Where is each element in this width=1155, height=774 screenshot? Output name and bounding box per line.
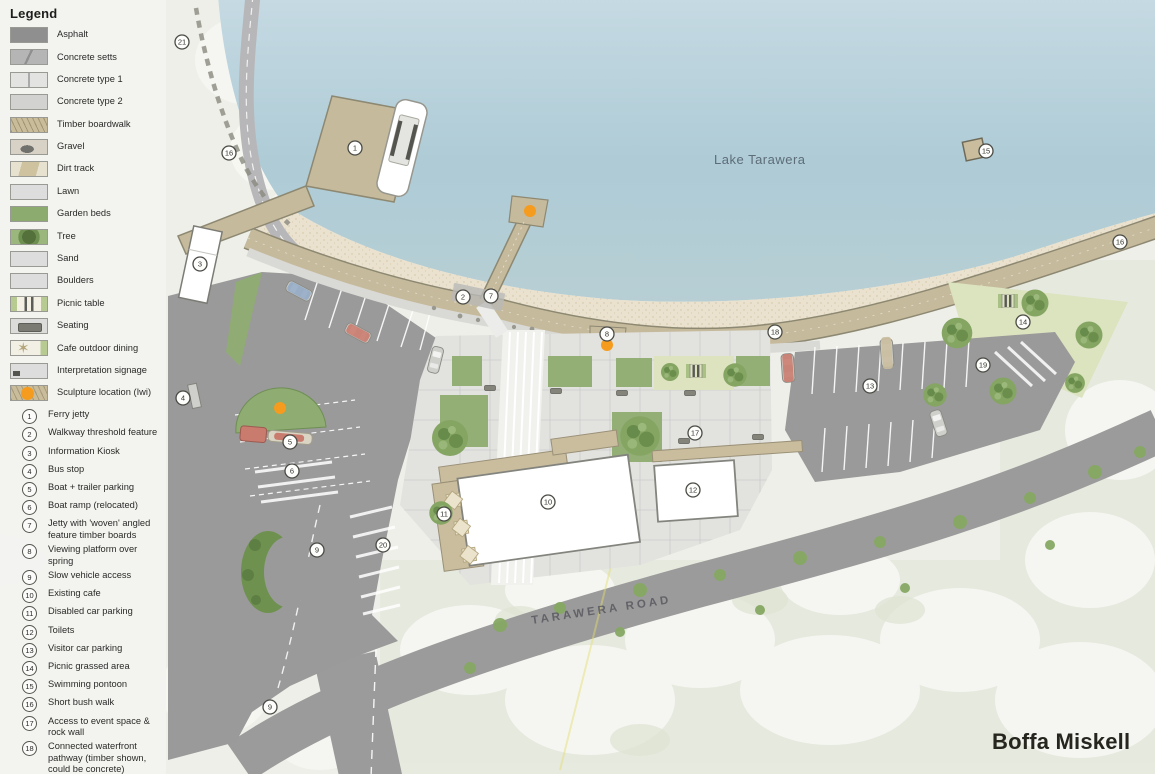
svg-text:9: 9 — [268, 703, 272, 712]
item-number-badge: 11 — [22, 606, 37, 621]
item-number-badge: 15 — [22, 679, 37, 694]
legend-item-label: Short bush walk — [48, 697, 114, 708]
legend-material-label: Concrete type 2 — [57, 97, 123, 107]
legend-material-concrete-type-1: Concrete type 1 — [10, 72, 162, 88]
item-number-badge: 13 — [22, 643, 37, 658]
legend-material-sculpture-location: Sculpture location (Iwi) — [10, 385, 162, 401]
map-marker-13: 13 — [863, 379, 877, 393]
legend-item-2: 2Walkway threshold feature — [10, 427, 162, 442]
dirt-track-swatch — [10, 161, 48, 177]
svg-text:8: 8 — [605, 330, 609, 339]
legend-item-label: Viewing platform over spring — [48, 544, 162, 567]
legend-item-label: Access to event space & rock wall — [48, 716, 162, 739]
item-number-badge: 14 — [22, 661, 37, 676]
item-number-badge: 3 — [22, 446, 37, 461]
legend-material-concrete-setts: Concrete setts — [10, 49, 162, 65]
item-number-badge: 1 — [22, 409, 37, 424]
interpretation-signage-swatch — [10, 363, 48, 379]
map-marker-16: 16 — [222, 146, 236, 160]
legend-material-label: Concrete type 1 — [57, 75, 123, 85]
gravel-swatch — [10, 139, 48, 155]
legend-item-label: Disabled car parking — [48, 606, 133, 617]
legend-item-label: Boat ramp (relocated) — [48, 500, 138, 511]
legend-material-sand: Sand — [10, 251, 162, 267]
map-marker-7: 7 — [484, 289, 498, 303]
legend-item-label: Ferry jetty — [48, 409, 89, 420]
svg-text:14: 14 — [1019, 318, 1027, 327]
legend-item-label: Visitor car parking — [48, 643, 122, 654]
legend-title: Legend — [10, 6, 162, 21]
legend-item-13: 13Visitor car parking — [10, 643, 162, 658]
legend-material-label: Asphalt — [57, 30, 88, 40]
svg-text:3: 3 — [198, 260, 202, 269]
legend-material-label: Sculpture location (Iwi) — [57, 388, 151, 398]
item-number-badge: 5 — [22, 482, 37, 497]
legend-item-14: 14Picnic grassed area — [10, 661, 162, 676]
svg-text:9: 9 — [315, 546, 319, 555]
svg-text:5: 5 — [288, 438, 292, 447]
map-marker-6: 6 — [285, 464, 299, 478]
site-plan-drawing: Lake Tarawera TARAWERA ROAD 123456789910… — [0, 0, 1155, 774]
legend-material-lawn: Lawn — [10, 184, 162, 200]
svg-text:16: 16 — [225, 149, 233, 158]
legend-material-label: Gravel — [57, 142, 84, 152]
map-marker-1: 1 — [348, 141, 362, 155]
legend-material-cafe-outdoor-dining: Cafe outdoor dining — [10, 340, 162, 356]
legend-material-concrete-type-2: Concrete type 2 — [10, 94, 162, 110]
map-marker-20: 20 — [376, 538, 390, 552]
legend-item-label: Bus stop — [48, 464, 84, 475]
legend-material-label: Boulders — [57, 276, 94, 286]
map-marker-8: 8 — [600, 327, 614, 341]
legend-material-label: Picnic table — [57, 299, 105, 309]
item-number-badge: 9 — [22, 570, 37, 585]
map-marker-10: 10 — [541, 495, 555, 509]
crescent-shrub — [241, 531, 310, 613]
legend-item-label: Picnic grassed area — [48, 661, 130, 672]
svg-text:21: 21 — [178, 38, 186, 47]
legend-item-3: 3Information Kiosk — [10, 446, 162, 461]
legend-item-11: 11Disabled car parking — [10, 606, 162, 621]
lake-label: Lake Tarawera — [714, 152, 806, 167]
item-number-badge: 8 — [22, 544, 37, 559]
map-marker-19: 19 — [976, 358, 990, 372]
item-number-badge: 17 — [22, 716, 37, 731]
item-number-badge: 4 — [22, 464, 37, 479]
seating-swatch — [10, 318, 48, 334]
svg-text:13: 13 — [866, 382, 874, 391]
legend-item-12: 12Toilets — [10, 625, 162, 640]
map-marker-9: 9 — [263, 700, 277, 714]
legend-item-label: Information Kiosk — [48, 446, 120, 457]
legend-item-label: Toilets — [48, 625, 74, 636]
legend-material-dirt-track: Dirt track — [10, 161, 162, 177]
svg-text:18: 18 — [771, 328, 779, 337]
map-marker-15: 15 — [979, 144, 993, 158]
sand-swatch — [10, 251, 48, 267]
legend-material-label: Concrete setts — [57, 53, 117, 63]
legend-item-label: Existing cafe — [48, 588, 101, 599]
picnic-table-swatch — [10, 296, 48, 312]
svg-text:6: 6 — [290, 467, 294, 476]
map-marker-4: 4 — [176, 391, 190, 405]
legend-item-1: 1Ferry jetty — [10, 409, 162, 424]
legend-material-timber-boardwalk: Timber boardwalk — [10, 117, 162, 133]
legend-item-label: Jetty with 'woven' angled feature timber… — [48, 518, 162, 541]
legend-item-label: Boat + trailer parking — [48, 482, 134, 493]
lawn-swatch — [10, 184, 48, 200]
concrete-type-2-swatch — [10, 94, 48, 110]
legend-material-label: Timber boardwalk — [57, 120, 131, 130]
svg-text:11: 11 — [440, 510, 448, 519]
svg-text:15: 15 — [982, 147, 990, 156]
map-marker-12: 12 — [686, 483, 700, 497]
item-number-badge: 7 — [22, 518, 37, 533]
map-marker-9: 9 — [310, 543, 324, 557]
legend-item-label: Connected waterfront pathway (timber sho… — [48, 741, 162, 774]
legend-item-15: 15Swimming pontoon — [10, 679, 162, 694]
svg-text:17: 17 — [691, 429, 699, 438]
legend-material-label: Interpretation signage — [57, 366, 147, 376]
legend-material-label: Cafe outdoor dining — [57, 344, 138, 354]
legend-item-10: 10Existing cafe — [10, 588, 162, 603]
map-marker-2: 2 — [456, 290, 470, 304]
svg-text:16: 16 — [1116, 238, 1124, 247]
legend-item-label: Slow vehicle access — [48, 570, 131, 581]
legend-item-5: 5Boat + trailer parking — [10, 482, 162, 497]
legend-material-seating: Seating — [10, 318, 162, 334]
concrete-type-1-swatch — [10, 72, 48, 88]
legend-item-4: 4Bus stop — [10, 464, 162, 479]
legend-material-garden-beds: Garden beds — [10, 206, 162, 222]
svg-text:4: 4 — [181, 394, 185, 403]
legend-item-6: 6Boat ramp (relocated) — [10, 500, 162, 515]
svg-text:12: 12 — [689, 486, 697, 495]
legend-material-label: Seating — [57, 321, 89, 331]
map-marker-3: 3 — [193, 257, 207, 271]
item-number-badge: 12 — [22, 625, 37, 640]
legend-material-label: Tree — [57, 232, 76, 242]
asphalt-swatch — [10, 27, 48, 43]
legend-material-label: Lawn — [57, 187, 79, 197]
map-marker-17: 17 — [688, 426, 702, 440]
svg-text:1: 1 — [353, 144, 357, 153]
legend-item-16: 16Short bush walk — [10, 697, 162, 712]
sculpture-location-dot — [274, 402, 286, 414]
legend-item-17: 17Access to event space & rock wall — [10, 716, 162, 739]
legend-material-boulders: Boulders — [10, 273, 162, 289]
legend-material-label: Garden beds — [57, 209, 111, 219]
item-number-badge: 18 — [22, 741, 37, 756]
sculpture-location-dot — [524, 205, 536, 217]
site-plan: Lake Tarawera TARAWERA ROAD 123456789910… — [0, 0, 1155, 774]
legend-material-interpretation-signage: Interpretation signage — [10, 363, 162, 379]
legend-item-18: 18Connected waterfront pathway (timber s… — [10, 741, 162, 774]
legend-material-gravel: Gravel — [10, 139, 162, 155]
svg-text:19: 19 — [979, 361, 987, 370]
legend-materials-list: AsphaltConcrete settsConcrete type 1Conc… — [10, 27, 162, 401]
item-number-badge: 6 — [22, 500, 37, 515]
timber-boardwalk-swatch — [10, 117, 48, 133]
map-marker-18: 18 — [768, 325, 782, 339]
legend-panel: Legend AsphaltConcrete settsConcrete typ… — [0, 0, 166, 774]
legend-material-picnic-table: Picnic table — [10, 296, 162, 312]
boulders-swatch — [10, 273, 48, 289]
map-marker-11: 11 — [437, 507, 451, 521]
tree-swatch — [10, 229, 48, 245]
map-marker-14: 14 — [1016, 315, 1030, 329]
svg-text:10: 10 — [544, 498, 552, 507]
svg-text:2: 2 — [461, 293, 465, 302]
cafe-outdoor-dining-swatch — [10, 340, 48, 356]
map-marker-21: 21 — [175, 35, 189, 49]
legend-numbered-list: 1Ferry jetty2Walkway threshold feature3I… — [10, 409, 162, 774]
legend-material-label: Sand — [57, 254, 79, 264]
map-marker-16: 16 — [1113, 235, 1127, 249]
item-number-badge: 16 — [22, 697, 37, 712]
legend-material-asphalt: Asphalt — [10, 27, 162, 43]
legend-item-8: 8Viewing platform over spring — [10, 544, 162, 567]
legend-material-label: Dirt track — [57, 164, 94, 174]
map-marker-5: 5 — [283, 435, 297, 449]
svg-text:20: 20 — [379, 541, 387, 550]
item-number-badge: 10 — [22, 588, 37, 603]
concrete-setts-swatch — [10, 49, 48, 65]
legend-item-label: Swimming pontoon — [48, 679, 127, 690]
sculpture-location-swatch — [10, 385, 48, 401]
legend-item-label: Walkway threshold feature — [48, 427, 157, 438]
brand-logo: Boffa Miskell — [992, 729, 1130, 755]
legend-item-9: 9Slow vehicle access — [10, 570, 162, 585]
legend-material-tree: Tree — [10, 229, 162, 245]
svg-text:7: 7 — [489, 292, 493, 301]
item-number-badge: 2 — [22, 427, 37, 442]
garden-beds-swatch — [10, 206, 48, 222]
legend-item-7: 7Jetty with 'woven' angled feature timbe… — [10, 518, 162, 541]
